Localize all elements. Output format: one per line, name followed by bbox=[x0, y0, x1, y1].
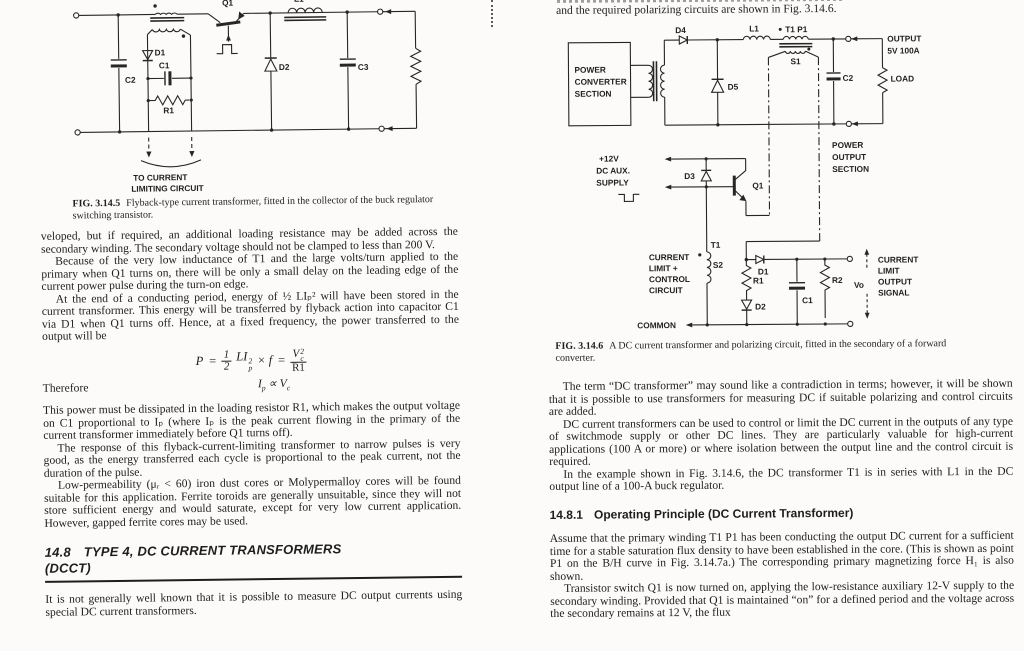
paragraph: Transistor switch Q1 is now turned on, a… bbox=[550, 580, 1014, 621]
label-c3: C3 bbox=[358, 62, 369, 72]
label-power-output-3: SECTION bbox=[832, 164, 869, 174]
section-heading-14-8-1: 14.8.1Operating Principle (DC Current Tr… bbox=[550, 505, 1014, 521]
label-s2: S2 bbox=[713, 260, 724, 270]
paragraph: The term “DC transformer” may sound like… bbox=[549, 378, 1013, 419]
label-dc-aux: DC AUX. bbox=[596, 165, 630, 175]
eq-li-term: LI2p bbox=[236, 350, 252, 371]
label-5v-100a: 5V 100A bbox=[887, 45, 919, 55]
eq-half-fraction: 12 bbox=[222, 350, 232, 373]
therefore-row: Therefore Ip ∝ Vc bbox=[43, 375, 460, 397]
eq-lhs: P bbox=[196, 355, 204, 368]
intro-line: and the required polarizing circuits are… bbox=[556, 2, 986, 18]
paragraph: It is not generally well known that it i… bbox=[45, 589, 462, 619]
label-signal-1: CURRENT bbox=[878, 254, 919, 264]
transistor-q1: Q1 bbox=[734, 158, 769, 215]
mains-transformer bbox=[630, 40, 665, 125]
section-number: 14.8 bbox=[45, 545, 71, 560]
base-drive-pulse bbox=[217, 44, 238, 53]
figure-3-14-5: C2 D1 bbox=[30, 0, 502, 194]
paragraph: At the end of a conducting period, energ… bbox=[42, 288, 460, 343]
power-converter-box: POWER CONVERTER SECTION bbox=[568, 42, 631, 125]
label-current-limit-2: LIMIT + bbox=[649, 263, 678, 273]
paragraph: This power must be dissipated in the loa… bbox=[43, 400, 460, 443]
label-q1: Q1 bbox=[222, 0, 234, 8]
dc-current-transformer: T1 P1 S1 bbox=[768, 24, 820, 241]
left-body-text: veloped, but if required, an additional … bbox=[41, 226, 463, 619]
capacitor-c1: C1 bbox=[146, 60, 193, 86]
label-d4: D4 bbox=[675, 25, 686, 35]
section-number: 14.8.1 bbox=[550, 507, 583, 521]
diode-d2: D2 bbox=[264, 11, 290, 132]
paragraph: Low-permeability (μᵣ < 60) iron dust cor… bbox=[44, 475, 462, 530]
transistor-q1: Q1 bbox=[208, 0, 245, 54]
figure-3-14-6: POWER CONVERTER SECTION D4 bbox=[543, 23, 925, 338]
label-common: COMMON bbox=[637, 320, 676, 330]
figure-1-caption-text: Flyback-type current transformer, fitted… bbox=[73, 194, 434, 221]
figure-2-caption: FIG. 3.14.6A DC current transformer and … bbox=[555, 338, 955, 365]
label-t1p1: T1 P1 bbox=[785, 24, 808, 34]
label-current-limit-4: CIRCUIT bbox=[649, 285, 683, 295]
section-title: TYPE 4, DC CURRENT TRANSFORMERS bbox=[84, 542, 342, 560]
output-load: OUTPUT 5V 100A LOAD bbox=[846, 33, 922, 126]
label-supply: SUPPLY bbox=[596, 177, 629, 187]
paragraph: The response of this flyback-current-lim… bbox=[43, 438, 460, 481]
label-signal-3: OUTPUT bbox=[878, 276, 912, 286]
label-r2: R2 bbox=[832, 275, 843, 285]
label-r1: R1 bbox=[163, 105, 174, 115]
label-power-output-1: POWER bbox=[832, 140, 863, 150]
capacitor-c3: C3 bbox=[339, 10, 369, 131]
label-signal-2: LIMIT bbox=[878, 266, 900, 276]
label-l1: L1 bbox=[749, 23, 759, 33]
diode-d5: D5 bbox=[711, 40, 739, 125]
label-section: SECTION bbox=[575, 89, 612, 99]
label-d5: D5 bbox=[728, 82, 739, 92]
paragraph: DC current transformers can be used to c… bbox=[549, 415, 1013, 468]
label-d2: D2 bbox=[279, 62, 290, 72]
label-load: LOAD bbox=[891, 73, 915, 83]
output-load bbox=[378, 9, 422, 132]
current-limit-note: TO CURRENT LIMITING CIRCUIT bbox=[131, 137, 204, 194]
capacitor-c2: C2 bbox=[110, 13, 136, 134]
label-t1: T1 bbox=[711, 240, 721, 250]
section-title: Operating Principle (DC Current Transfor… bbox=[594, 505, 853, 521]
label-current-limit-1: CURRENT bbox=[649, 252, 690, 262]
note-line2: LIMITING CIRCUIT bbox=[131, 183, 203, 194]
label-d2: D2 bbox=[755, 301, 766, 311]
label-r1: R1 bbox=[753, 275, 764, 285]
eq-equals2: = bbox=[277, 354, 286, 367]
label-c1: C1 bbox=[802, 295, 813, 305]
inductor-l1: L1 bbox=[284, 0, 326, 20]
sense-network: D1 R1 D2 C1 R2 bbox=[741, 241, 853, 325]
scanned-book-page: C2 D1 bbox=[0, 0, 1024, 651]
supply-pulse bbox=[618, 194, 639, 201]
label-vo: Vo bbox=[854, 280, 864, 290]
label-12v: +12V bbox=[599, 153, 619, 163]
label-d1: D1 bbox=[155, 47, 166, 57]
label-l1: L1 bbox=[294, 0, 304, 4]
figure-2-caption-label: FIG. 3.14.6 bbox=[555, 341, 603, 352]
power-equation: P = 12 LI2p × f = V2c R1 bbox=[42, 345, 459, 376]
label-s1: S1 bbox=[790, 56, 801, 66]
label-power-output-2: OUTPUT bbox=[832, 152, 866, 162]
figure-1-caption-label: FIG. 3.14.5 bbox=[72, 198, 120, 210]
label-c1: C1 bbox=[159, 60, 170, 70]
eq-times-f: × f bbox=[257, 354, 272, 367]
common-rail: COMMON bbox=[637, 319, 853, 331]
label-power: POWER bbox=[574, 65, 605, 75]
eq-equals: = bbox=[208, 355, 217, 368]
figure-2-caption-text: A DC current transformer and polarizing … bbox=[555, 338, 946, 364]
aux-supply: +12V DC AUX. SUPPLY bbox=[596, 153, 746, 202]
label-converter: CONVERTER bbox=[575, 76, 627, 86]
right-body-text: The term “DC transformer” may sound like… bbox=[549, 378, 1015, 621]
diode-d3: D3 bbox=[684, 157, 711, 188]
paragraph: Assume that the primary winding T1 P1 ha… bbox=[550, 530, 1014, 583]
label-signal-4: SIGNAL bbox=[878, 287, 909, 297]
output-capacitor-c2: C2 bbox=[826, 37, 854, 126]
figure-1-caption: FIG. 3.14.5Flyback-type current transfor… bbox=[72, 194, 444, 223]
eq-vc-fraction: V2c R1 bbox=[290, 347, 306, 373]
section-subtitle: (DCCT) bbox=[45, 560, 91, 576]
left-column: C2 D1 bbox=[30, 0, 504, 194]
winding-s2: T1 S2 bbox=[698, 187, 724, 325]
note-line1: TO CURRENT bbox=[133, 172, 187, 183]
diode-d1: D1 bbox=[143, 47, 166, 60]
vo-annotation: Vo CURRENT LIMIT OUTPUT SIGNAL bbox=[854, 248, 919, 318]
label-q1: Q1 bbox=[752, 180, 764, 190]
label-c2: C2 bbox=[843, 73, 854, 83]
label-d3: D3 bbox=[684, 171, 695, 181]
resistor-r1: R1 bbox=[147, 96, 193, 116]
label-current-limit-3: CONTROL bbox=[649, 274, 690, 284]
label-output: OUTPUT bbox=[887, 33, 921, 43]
therefore-label: Therefore bbox=[43, 382, 89, 395]
section-heading-14-8: 14.8TYPE 4, DC CURRENT TRANSFORMERS (DCC… bbox=[45, 540, 462, 583]
proportion-equation: Ip ∝ Vc bbox=[88, 375, 459, 396]
paragraph: In the example shown in Fig. 3.14.6, the… bbox=[549, 465, 1013, 493]
label-c2: C2 bbox=[125, 75, 136, 85]
paragraph: Because of the very low inductance of T1… bbox=[41, 251, 458, 294]
